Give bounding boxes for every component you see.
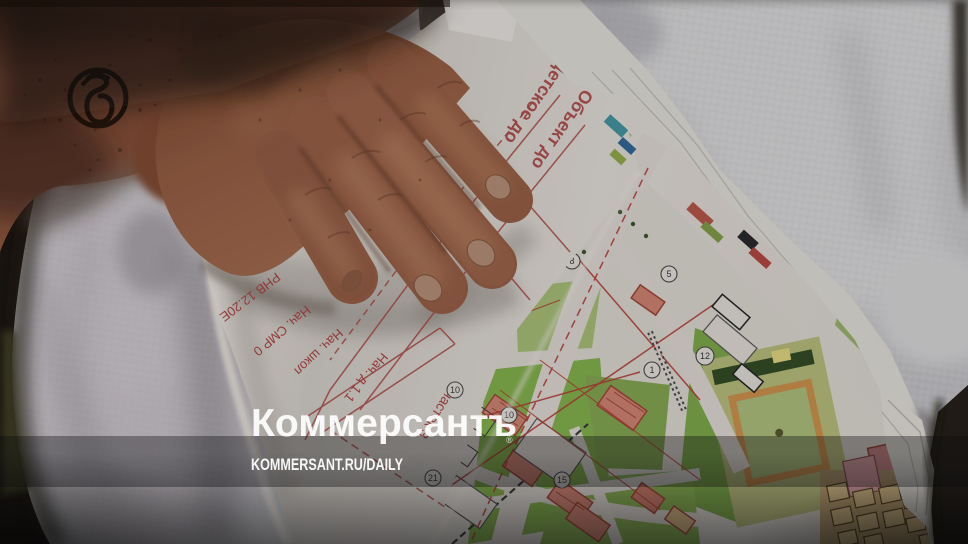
svg-text:®: ® [506, 435, 513, 445]
svg-text:KOMMERSANT.RU/DAILY: KOMMERSANT.RU/DAILY [251, 455, 403, 474]
svg-text:Коммерсантъ: Коммерсантъ [251, 402, 517, 445]
